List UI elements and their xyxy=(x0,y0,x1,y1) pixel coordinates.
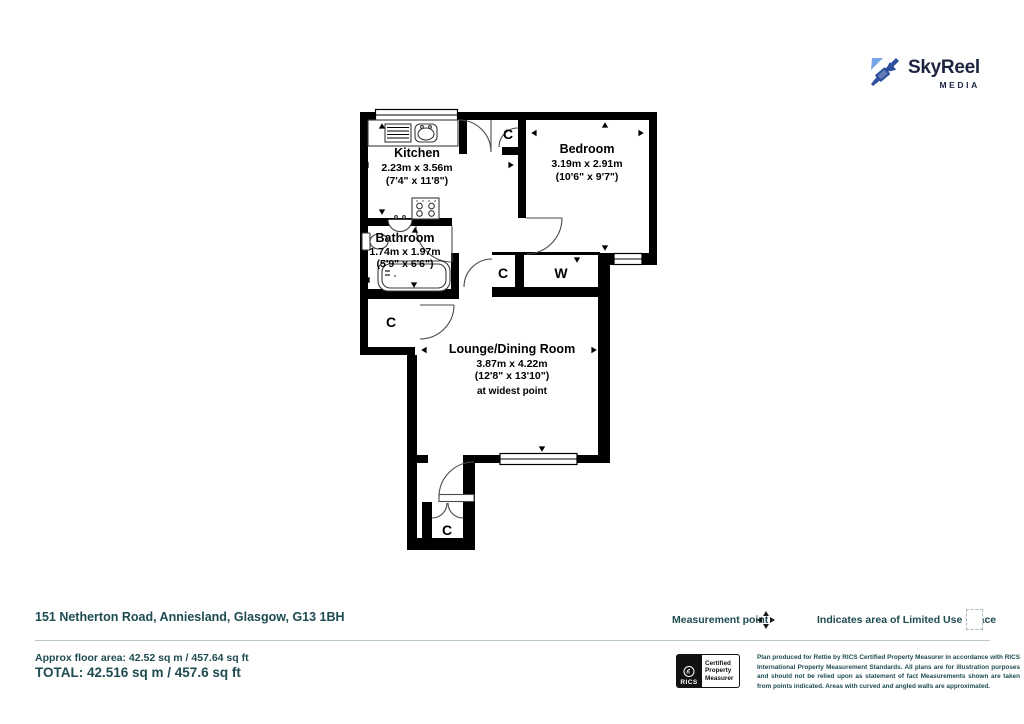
rics-cert-line: Certified xyxy=(705,660,739,668)
approx-floor-area: Approx floor area: 42.52 sq m / 457.64 s… xyxy=(35,652,249,664)
closet-entrance-label: C xyxy=(442,522,452,538)
lounge-label: Lounge/Dining Room xyxy=(449,342,575,356)
store-closet-door xyxy=(420,305,454,339)
closet-top-label: C xyxy=(503,126,513,142)
logo-brand-text: SkyReel xyxy=(908,57,980,79)
kitchen-dim-m: 2.23m x 3.56m xyxy=(381,162,452,174)
rics-logo: RICS xyxy=(676,654,702,688)
stove xyxy=(412,198,439,219)
bathroom-dim-m: 1.74m x 1.97m xyxy=(369,246,440,258)
basin xyxy=(388,216,412,232)
rics-cert-line: Measurer xyxy=(705,675,739,683)
bathroom-dim-ft: (5'9" x 6'6") xyxy=(377,258,434,270)
kitchen-counter xyxy=(368,120,458,146)
measurement-point-icon xyxy=(756,610,776,630)
bedroom-dim-ft: (10'6" x 9'7") xyxy=(556,171,619,183)
entrance-closet-doors xyxy=(432,503,463,518)
kitchen-label: Kitchen xyxy=(394,146,440,160)
floorplan-page: SkyReel MEDIA xyxy=(0,0,1024,724)
rics-cert-line: Property xyxy=(705,667,739,675)
lounge-window xyxy=(500,454,577,465)
lounge-dim-ft: (12'8" x 13'10") xyxy=(475,370,550,382)
kitchen-dim-ft: (7'4" x 11'8") xyxy=(386,175,448,187)
total-floor-area: TOTAL: 42.516 sq m / 457.6 sq ft xyxy=(35,665,241,680)
lounge-note: at widest point xyxy=(477,386,548,397)
bedroom-label: Bedroom xyxy=(560,142,615,156)
lounge-dim-m: 3.87m x 4.22m xyxy=(476,358,547,370)
rics-crest-icon xyxy=(683,665,695,679)
rics-brand-text: RICS xyxy=(680,679,697,686)
limited-use-swatch xyxy=(966,609,983,630)
wardrobe-label: W xyxy=(554,265,568,281)
footer-divider xyxy=(35,640,990,641)
hall-closet-door xyxy=(464,259,492,287)
bathroom-label: Bathroom xyxy=(375,231,434,245)
floorplan-drawing: Kitchen 2.23m x 3.56m (7'4" x 11'8") Bed… xyxy=(355,95,665,557)
disclaimer-text: Plan produced for Rettie by RICS Certifi… xyxy=(757,653,1020,691)
bedroom-door xyxy=(526,218,562,254)
skyreel-logo: SkyReel MEDIA xyxy=(870,57,980,90)
logo-sub-text: MEDIA xyxy=(939,80,979,90)
measurement-point-label: Measurement point xyxy=(672,614,768,626)
rics-certification-badge: RICS Certified Property Measurer xyxy=(676,654,740,688)
closet-store-label: C xyxy=(386,314,396,330)
video-camera-icon xyxy=(870,57,900,87)
kitchen-window xyxy=(376,110,458,121)
bedroom-window xyxy=(614,254,642,265)
closet-hall-label: C xyxy=(498,265,508,281)
rics-cert-text: Certified Property Measurer xyxy=(702,654,740,688)
property-address: 151 Netherton Road, Anniesland, Glasgow,… xyxy=(35,610,345,624)
bedroom-dim-m: 3.19m x 2.91m xyxy=(551,158,622,170)
